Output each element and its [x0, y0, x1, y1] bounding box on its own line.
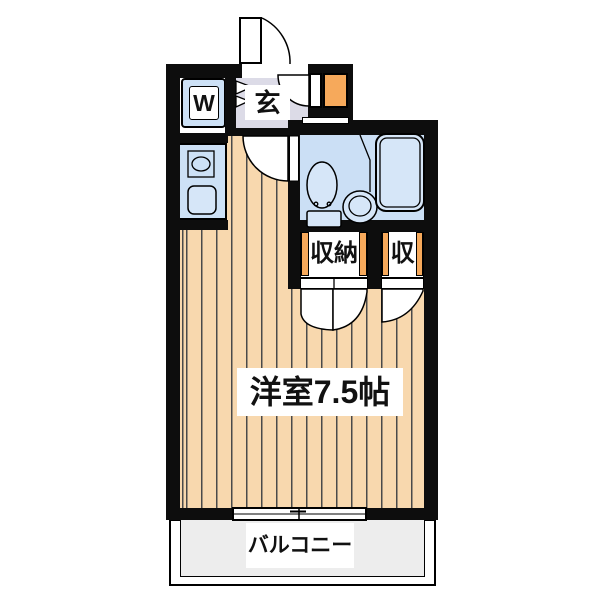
toilet-bowl-icon — [307, 162, 337, 208]
bathroom-door-opening — [290, 136, 299, 181]
closet-small-label: 収 — [389, 230, 416, 278]
closet-large-label: 収納 — [309, 230, 359, 278]
floor-plan: W 玄 収納 収 洋室7.5帖 バルコニー — [0, 0, 600, 600]
closet-small-door — [382, 289, 423, 322]
washer-label: W — [189, 86, 219, 120]
kitchen-sink-icon — [188, 186, 216, 214]
bath-partition-line — [360, 135, 370, 192]
bathtub-icon — [376, 134, 424, 211]
closet-large-door-left — [301, 289, 333, 330]
entrance-label: 玄 — [245, 85, 290, 120]
entrance-outswing-arc — [262, 18, 290, 64]
fixtures-layer — [0, 0, 600, 600]
balcony-label: バルコニー — [246, 523, 354, 568]
stove-burner-icon — [192, 157, 210, 171]
toilet-tank-icon — [307, 211, 341, 227]
closet-large-door-right — [333, 289, 367, 330]
main-room-label: 洋室7.5帖 — [237, 368, 403, 416]
hall-door-swing — [243, 136, 288, 181]
